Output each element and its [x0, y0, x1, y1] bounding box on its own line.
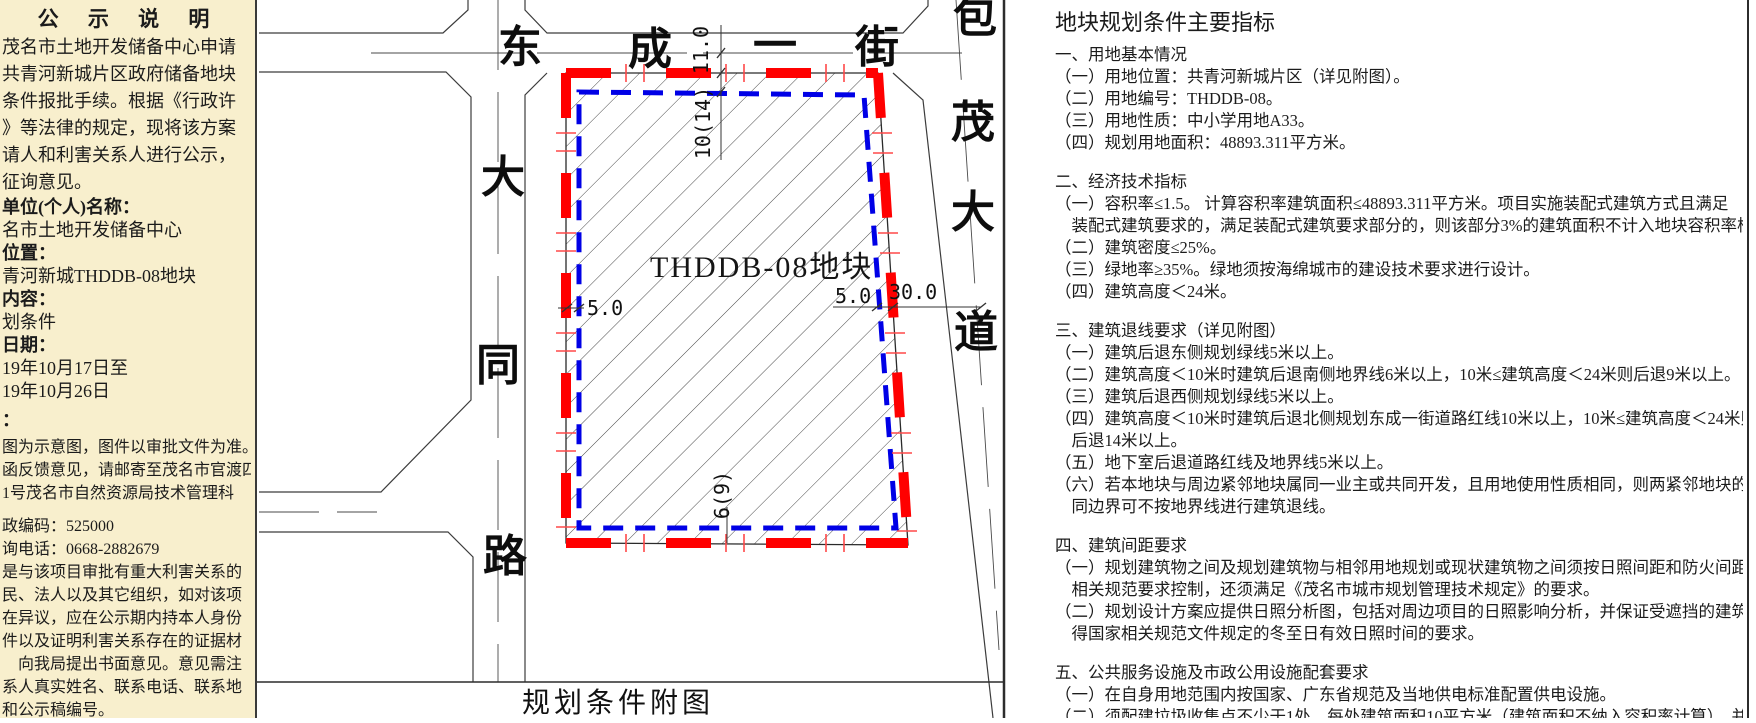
notice-line: 名市土地开发储备中心 [2, 219, 251, 242]
notice-line: 青河新城THDDB-08地块 [2, 265, 251, 288]
notice-line: 函反馈意见，请邮寄至茂名市官渡四 [2, 459, 251, 482]
indicator-line: （二）规划设计方案应提供日照分析图，包括对周边项目的日照影响分析，并保证受遮挡的… [1055, 601, 1743, 623]
site-plan-drawing: 东 成 一 街 大 同 路 包 茂 大 道 THDDB-08地块 规划条件附图 … [257, 0, 1007, 718]
indicator-line: （一）规划建筑物之间及规划建筑物与相邻用地规划或现状建筑物之间须按日照间距和防火… [1055, 557, 1743, 579]
road-label-char: 同 [476, 341, 520, 390]
map-caption: 规划条件附图 [522, 687, 714, 718]
indicators-body: 一、用地基本情况（一）用地位置：共青河新城片区（详见附图）。（二）用地编号：TH… [1055, 44, 1743, 718]
avenue-label-char: 道 [954, 308, 998, 357]
indicator-line: （四）建筑高度＜10米时建筑后退北侧规划东成一街道路红线10米以上，10米≤建筑… [1055, 408, 1743, 430]
dim-south-setback: 6(9) [710, 471, 734, 519]
notice-line: 政编码：525000 [2, 515, 251, 538]
indicators-title: 地块规划条件主要指标 [1055, 6, 1743, 40]
notice-line: 19年10月17日至 [2, 357, 251, 380]
indicator-line: （二）建筑高度＜10米时建筑后退南侧地界线6米以上，10米≤建筑高度＜24米则后… [1055, 364, 1743, 386]
notice-line: 日期： [2, 334, 251, 357]
notice-line: 1号茂名市自然资源局技术管理科 [2, 482, 251, 505]
notice-line: 共青河新城片区政府储备地块 [2, 61, 251, 88]
road-label-char: 大 [481, 153, 525, 202]
notice-line: 系人真实姓名、联系电话、联系地 [2, 676, 251, 699]
notice-line: 19年10月26日 [2, 380, 251, 403]
planning-indicators-panel: 地块规划条件主要指标 一、用地基本情况（一）用地位置：共青河新城片区（详见附图）… [1007, 0, 1749, 718]
notice-body: 茂名市土地开发储备中心申请共青河新城片区政府储备地块条件报批手续。根据《行政许》… [2, 34, 251, 718]
dim-north-setback: 10(14) [691, 87, 715, 159]
indicator-line: （一）容积率≤1.5。 计算容积率建筑面积≤48893.311平方米。项目实施装… [1055, 193, 1743, 215]
indicator-line: 后退14米以上。 [1055, 430, 1743, 452]
indicator-line: 装配式建筑要求的，满足装配式建筑要求部分的，则该部分3%的建筑面积不计入地块容积… [1055, 215, 1743, 237]
indicator-line: 同边界可不按地界线进行建筑退线。 [1055, 496, 1743, 518]
avenue-label-char: 包 [953, 0, 997, 42]
notice-line: 图为示意图，图件以审批文件为准。 [2, 436, 251, 459]
notice-line: 请人和利害关系人进行公示， [2, 142, 251, 169]
indicator-line [1055, 645, 1743, 662]
indicator-line: （二）须配建垃圾收集点不少于1处，每处建筑面积10平方米（建筑面积不纳入容积率计… [1055, 706, 1743, 718]
notice-line: 条件报批手续。根据《行政许 [2, 88, 251, 115]
dim-east-road-halfwidth: 30.0 [889, 280, 937, 304]
indicator-line: （五）地下室后退道路红线及地界线5米以上。 [1055, 452, 1743, 474]
notice-line: 民、法人以及其它组织，如对该项 [2, 584, 251, 607]
notice-line: 单位(个人)名称： [2, 196, 251, 219]
indicator-line: 得国家相关规范文件规定的冬至日有效日照时间的要求。 [1055, 623, 1743, 645]
notice-line: 内容： [2, 288, 251, 311]
indicator-line: （一）用地位置：共青河新城片区（详见附图）。 [1055, 66, 1743, 88]
dim-east-setback: 5.0 [835, 284, 871, 308]
notice-line: 划条件 [2, 311, 251, 334]
street-label-char: 成 [628, 25, 672, 74]
notice-line: 和公示稿编号。 [2, 699, 251, 718]
indicator-line: （四）规划用地面积：48893.311平方米。 [1055, 132, 1743, 154]
indicator-line: （二）用地编号：THDDB-08。 [1055, 88, 1743, 110]
public-notice-panel: 公 示 说 明 茂名市土地开发储备中心申请共青河新城片区政府储备地块条件报批手续… [0, 0, 257, 718]
notice-line: 茂名市土地开发储备中心申请 [2, 34, 251, 61]
indicator-line [1055, 154, 1743, 171]
plot-label: THDDB-08地块 [650, 251, 873, 284]
avenue-label-char: 大 [951, 188, 995, 237]
notice-line: 》等法律的规定，现将该方案 [2, 115, 251, 142]
notice-line: 位置： [2, 242, 251, 265]
street-label-char: 一 [753, 21, 797, 70]
notice-line: 询电话：0668-2882679 [2, 538, 251, 561]
indicator-line: （三）用地性质：中小学用地A33。 [1055, 110, 1743, 132]
street-label-char: 东 [498, 23, 542, 72]
indicator-line: 一、用地基本情况 [1055, 44, 1743, 66]
notice-line: 向我局提出书面意见。意见需注 [2, 653, 251, 676]
avenue-label-char: 茂 [951, 98, 995, 147]
road-label-char: 路 [483, 532, 528, 581]
indicator-line: （六）若本地块与周边紧邻地块属同一业主或共同开发，且用地使用性质相同，则两紧邻地… [1055, 474, 1743, 496]
notice-title: 公 示 说 明 [2, 4, 251, 34]
street-label-char: 街 [854, 23, 899, 72]
indicator-line [1055, 518, 1743, 535]
notice-line: 征询意见。 [2, 169, 251, 196]
planning-notice-sheet: 公 示 说 明 茂名市土地开发储备中心申请共青河新城片区政府储备地块条件报批手续… [0, 0, 1756, 718]
dim-north-road-halfwidth: 11.0 [689, 26, 713, 74]
indicator-line: （三）绿地率≥35%。绿地须按海绵城市的建设技术要求进行设计。 [1055, 259, 1743, 281]
indicator-line: 三、建筑退线要求（详见附图） [1055, 320, 1743, 342]
indicator-line: 五、公共服务设施及市政公用设施配套要求 [1055, 662, 1743, 684]
notice-line: 在异议，应在公示期内持本人身份 [2, 607, 251, 630]
notice-line: 是与该项目审批有重大利害关系的 [2, 561, 251, 584]
indicator-line: （一）在自身用地范围内按国家、广东省规范及当地供电标准配置供电设施。 [1055, 684, 1743, 706]
indicator-line: 二、经济技术指标 [1055, 171, 1743, 193]
notice-line: ： [2, 409, 251, 432]
indicator-line [1055, 303, 1743, 320]
site-plan-map: 东 成 一 街 大 同 路 包 茂 大 道 THDDB-08地块 规划条件附图 … [257, 0, 1007, 718]
indicator-line: 相关规范要求控制，还须满足《茂名市城市规划管理技术规定》的要求。 [1055, 579, 1743, 601]
indicator-line: （四）建筑高度＜24米。 [1055, 281, 1743, 303]
dim-west-setback: 5.0 [587, 296, 623, 320]
indicator-line: （一）建筑后退东侧规划绿线5米以上。 [1055, 342, 1743, 364]
indicator-line: （二）建筑密度≤25%。 [1055, 237, 1743, 259]
indicator-line: 四、建筑间距要求 [1055, 535, 1743, 557]
indicator-line: （三）建筑后退西侧规划绿线5米以上。 [1055, 386, 1743, 408]
notice-line: 件以及证明利害关系存在的证据材 [2, 630, 251, 653]
sheet-right-border [1747, 0, 1749, 718]
